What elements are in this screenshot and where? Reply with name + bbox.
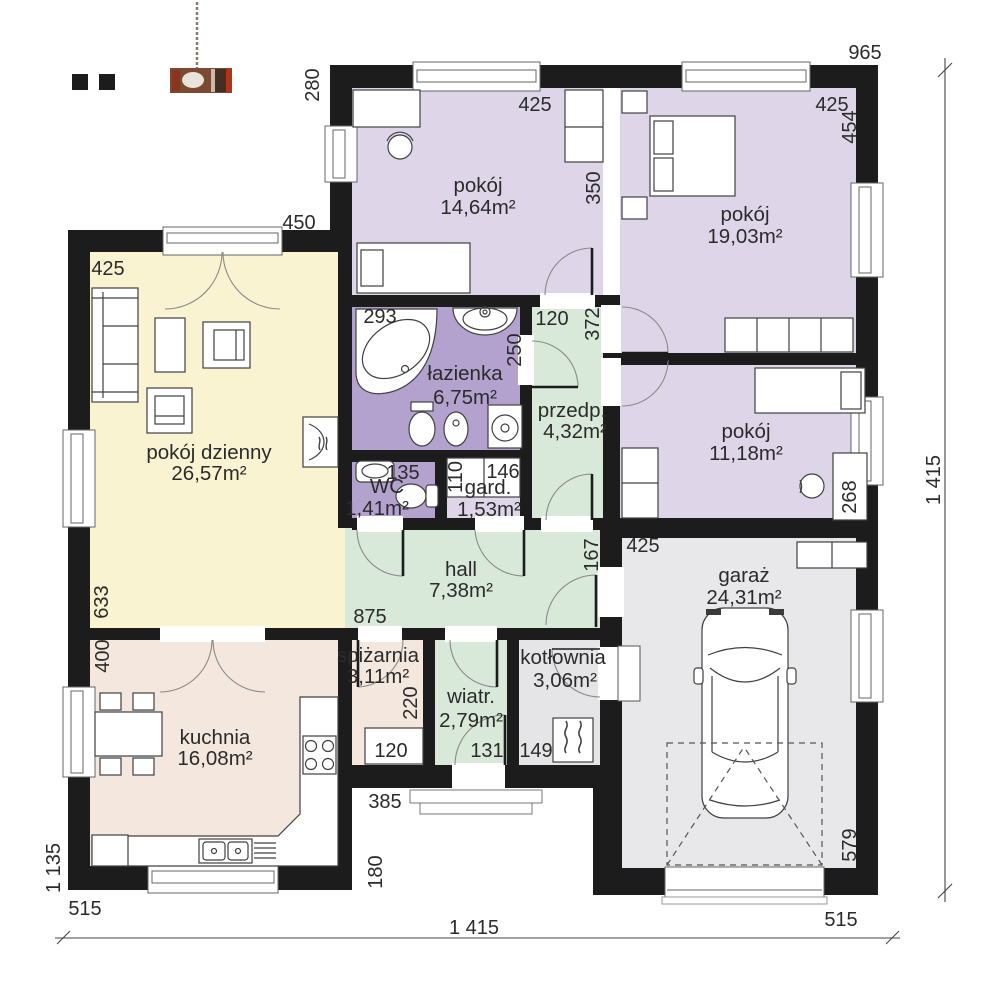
label-kuchnia-name: kuchnia [180, 726, 251, 749]
passage-fill-hall [345, 518, 352, 628]
window-living-left [63, 430, 95, 527]
entrance-steps [410, 790, 542, 814]
armchair-2 [147, 388, 192, 433]
opening-entrance [452, 763, 505, 790]
label-pokoj-2-name: pokój [720, 203, 769, 226]
logo-photo [170, 2, 232, 93]
opening-przedpokoj-hall [541, 516, 593, 532]
label-pokoj-dzienny-name: pokój dzienny [146, 441, 272, 464]
chair [388, 135, 412, 159]
opening-kuchnia-double [160, 626, 265, 642]
label-hall-name: hall [445, 558, 477, 581]
dim-250: 250 [504, 333, 526, 366]
opening-pokoj-1 [540, 293, 595, 309]
dim-454: 454 [839, 110, 861, 143]
logo-square-2 [99, 74, 115, 90]
dim-965: 965 [848, 42, 881, 64]
label-przedpokoj-area: 4,32m² [543, 420, 607, 443]
opening-wiatrolap [445, 626, 497, 642]
dim-425-garaz: 425 [626, 535, 659, 557]
label-garaz-area: 24,31m² [706, 586, 781, 609]
dim-146: 146 [486, 461, 519, 483]
coffee-table [155, 318, 185, 372]
wardrobe [565, 90, 603, 162]
dim-1415-right: 1 415 [923, 455, 945, 505]
label-pokoj-1-area: 14,64m² [440, 196, 515, 219]
label-pokoj-3-name: pokój [721, 420, 770, 443]
kotlownia-door-frame [618, 646, 640, 701]
logo [72, 2, 232, 93]
label-lazienka-area: 6,75m² [433, 386, 497, 409]
bidet [444, 412, 468, 446]
window-pokoj-1-left [325, 126, 357, 182]
dim-280: 280 [302, 68, 324, 101]
label-kuchnia-area: 16,08m² [177, 747, 252, 770]
dim-180: 180 [365, 855, 387, 888]
dim-385: 385 [368, 791, 401, 813]
label-garderoba-area: 1,53m² [457, 498, 521, 521]
label-lazienka-name: łazienka [427, 362, 503, 385]
dim-1415-bottom: 1 415 [449, 917, 499, 939]
label-garaz-name: garaż [718, 564, 769, 587]
label-spizarnia-name: spiżarnia [337, 644, 420, 667]
dim-425-pokoj-1: 425 [518, 94, 551, 116]
window-pokoj-2-top [682, 62, 810, 91]
dim-400: 400 [92, 639, 114, 672]
label-wiatrolap-area: 2,79m² [439, 709, 503, 732]
label-spizarnia-area: 3,11m² [347, 665, 409, 688]
window-pokoj-2-right [851, 183, 883, 277]
washing-machine [488, 405, 522, 448]
dim-220: 220 [400, 686, 422, 719]
dim-149: 149 [519, 740, 552, 762]
fridge [92, 835, 128, 866]
dim-293: 293 [363, 306, 396, 328]
dim-579: 579 [839, 828, 861, 861]
dim-515-left: 515 [68, 898, 101, 920]
boiler [553, 718, 593, 762]
car [694, 608, 796, 818]
dim-1135: 1 135 [43, 843, 65, 893]
dim-110: 110 [445, 461, 467, 493]
fireplace [303, 417, 338, 467]
dim-633: 633 [91, 585, 113, 618]
passage-fill-living [338, 518, 345, 628]
dim-120-przedpokoj: 120 [535, 308, 568, 330]
dim-268: 268 [839, 480, 861, 513]
dim-167: 167 [581, 538, 603, 571]
dim-875: 875 [353, 606, 386, 628]
nightstand-1 [622, 91, 647, 113]
label-kotlownia-area: 3,06m² [533, 669, 597, 692]
label-kotlownia-name: kotłownia [520, 646, 606, 669]
desk [353, 90, 420, 127]
dim-515-right: 515 [824, 909, 857, 931]
floor-plan-page: pokój 14,64m² pokój 19,03m² pokój 11,18m… [0, 0, 999, 996]
dim-135: 135 [386, 462, 419, 484]
label-przedpokoj-name: przedp. [538, 399, 606, 422]
chair [800, 474, 824, 498]
window-pokoj-1-top [413, 62, 540, 91]
window-kitchen-left [63, 687, 95, 777]
dim-372: 372 [582, 307, 604, 340]
label-pokoj-1-name: pokój [453, 174, 502, 197]
opening-hall-garaz [598, 567, 624, 617]
dim-350: 350 [583, 171, 605, 204]
toilet [409, 402, 435, 446]
dim-450: 450 [282, 212, 315, 234]
dim-425-living: 425 [91, 258, 124, 280]
floor-plan-drawing: pokój 14,64m² pokój 19,03m² pokój 11,18m… [0, 0, 999, 996]
garage-door [662, 867, 827, 904]
terrace-door [163, 227, 282, 255]
window-garaz-right [851, 610, 883, 702]
label-wiatrolap-name: wiatr. [446, 685, 495, 708]
label-pokoj-dzienny-area: 26,57m² [171, 462, 246, 485]
label-pokoj-2-area: 19,03m² [707, 225, 782, 248]
opening-spizarnia [358, 626, 402, 642]
nightstand-2 [622, 197, 647, 219]
label-pokoj-3-area: 11,18m² [709, 442, 783, 465]
logo-square-1 [72, 74, 88, 90]
dim-131: 131 [470, 740, 503, 762]
label-wc-area: 1,41m² [345, 497, 409, 520]
sofa [92, 288, 138, 402]
dim-120-spizarnia: 120 [374, 740, 407, 762]
label-hall-area: 7,38m² [429, 579, 493, 602]
armchair-1 [203, 322, 250, 368]
opening-pokoj-2 [601, 305, 621, 353]
